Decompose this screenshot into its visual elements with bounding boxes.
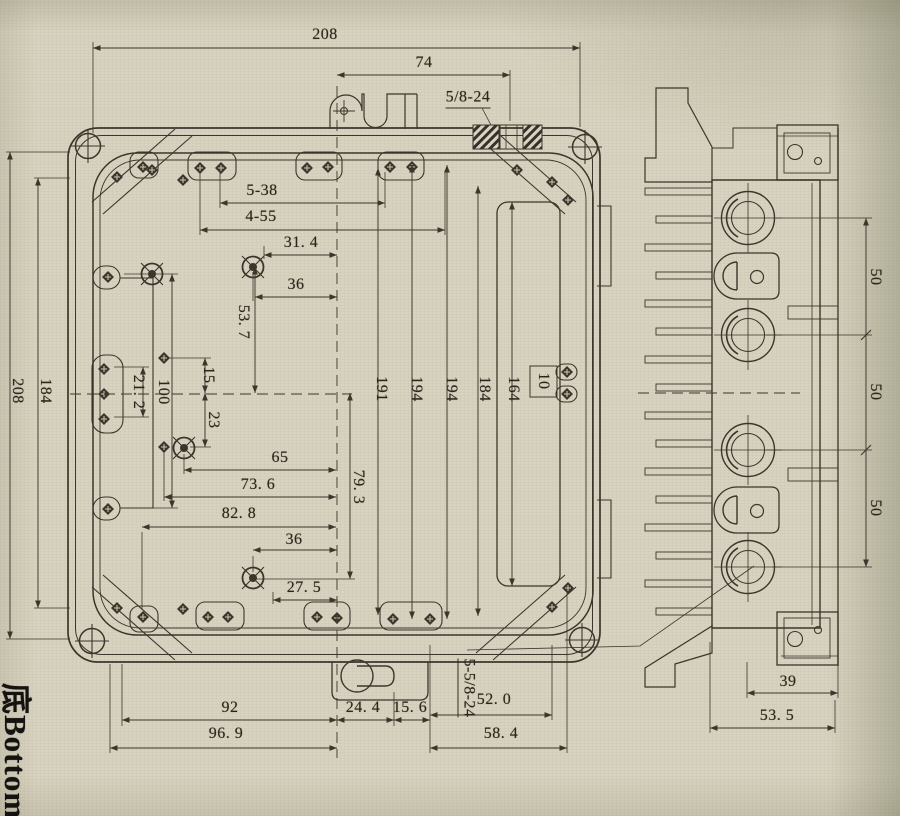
dim-15-6: 15. 6 (393, 700, 428, 716)
dim-50-b: 50 (867, 384, 883, 401)
dim-100: 100 (155, 379, 171, 405)
dim-52-0: 52. 0 (477, 692, 512, 708)
dim-65: 65 (272, 450, 289, 466)
dim-58-4: 58. 4 (484, 726, 519, 742)
dim-82-8: 82. 8 (222, 506, 257, 522)
dim-left-inner-height: 184 (37, 378, 53, 404)
bottom-view-caption: 底Bottom (0, 683, 41, 816)
centerlines (70, 86, 800, 758)
front-view (68, 94, 611, 700)
dim-10: 10 (535, 373, 551, 390)
dim-53-5: 53. 5 (760, 708, 795, 724)
dim-thread-bottom: 5-5/8-24 (458, 658, 477, 717)
dim-36-top: 36 (288, 277, 305, 293)
dim-27-5: 27. 5 (287, 580, 322, 596)
dim-thread-top: 5/8-24 (446, 90, 491, 109)
dim-184-mid: 184 (476, 376, 492, 402)
dim-79-3: 79. 3 (350, 470, 366, 505)
dim-194-b: 194 (443, 376, 459, 402)
dim-194-a: 194 (408, 376, 424, 402)
dim-96-9: 96. 9 (209, 726, 244, 742)
dim-92: 92 (222, 700, 239, 716)
dim-holes-a: 5-38 (246, 183, 277, 199)
dim-23: 23 (205, 412, 221, 429)
dim-left-height: 208 (9, 378, 25, 404)
dim-31-4: 31. 4 (284, 235, 319, 251)
dim-191: 191 (373, 376, 389, 402)
side-view (645, 88, 838, 687)
dim-73-6: 73. 6 (241, 477, 276, 493)
dim-top-width: 208 (312, 27, 338, 43)
dim-50-c: 50 (867, 500, 883, 517)
dim-36-bottom: 36 (286, 532, 303, 548)
dim-15: 15 (200, 367, 216, 384)
dim-24-4: 24. 4 (346, 700, 381, 716)
dim-164: 164 (505, 376, 521, 402)
scanned-drawing-page: 208 74 5/8-24 5-38 4-55 31. 4 36 53. 7 1… (0, 0, 900, 816)
dim-holes-b: 4-55 (245, 209, 276, 225)
dim-50-a: 50 (867, 269, 883, 286)
dim-tab-width: 74 (416, 55, 433, 71)
dim-53-7: 53. 7 (235, 305, 251, 340)
dim-21-2: 21. 2 (130, 375, 146, 410)
dim-39: 39 (780, 674, 797, 690)
